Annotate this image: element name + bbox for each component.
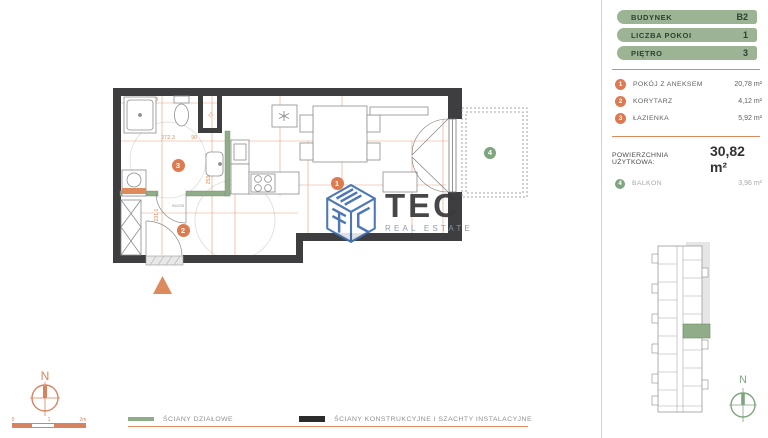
room-name: POKÓJ Z ANEKSEM <box>633 81 734 88</box>
wardrobe <box>121 200 141 255</box>
entrance-threshold <box>146 256 183 265</box>
room-marker-bathroom: 3 <box>172 159 185 172</box>
logo-subtitle: REAL ESTATE <box>385 224 473 233</box>
balcony-area: 3,96 m² <box>738 180 762 187</box>
room-area: 4,12 m² <box>738 98 762 105</box>
scale-tick: 2m <box>80 417 87 423</box>
room-name: KORYTARZ <box>633 98 738 105</box>
sidebar-divider <box>612 69 760 70</box>
compass-n-label: N <box>41 369 50 383</box>
washer-accent <box>122 188 146 194</box>
scale-bar: 0 1 2m <box>12 417 87 428</box>
dim-label: 231.1 <box>154 209 160 222</box>
info-bar-floor: PIĘTRO 3 <box>617 46 757 60</box>
room-marker-balcony: 4 <box>484 147 496 159</box>
legend-label-structural: ŚCIANY KONSTRUKCYJNE I SZACHTY INSTALACY… <box>334 416 532 423</box>
room-number-badge: 2 <box>615 96 626 107</box>
total-area-row: POWIERZCHNIA UŻYTKOWA: 30,82 m² <box>612 143 762 175</box>
building-key-plan <box>650 240 718 422</box>
dim-label: 272.3 <box>161 135 175 141</box>
dim-label: 90 <box>191 135 197 141</box>
vertical-separator <box>601 0 602 438</box>
entrance-arrow <box>153 276 172 294</box>
scale-tick: 1 <box>48 417 51 423</box>
legend-swatch-partition <box>128 417 154 421</box>
room-list-item: 2 KORYTARZ 4,12 m² <box>612 93 762 110</box>
legend-underline <box>128 426 528 427</box>
info-bar-rooms: LICZBA POKOI 1 <box>617 28 757 42</box>
rooms-label: LICZBA POKOI <box>631 31 692 40</box>
info-bars: BUDYNEK B2 LICZBA POKOI 1 PIĘTRO 3 <box>612 0 768 60</box>
room-number-badge: 3 <box>615 113 626 124</box>
key-plan-compass: N <box>724 370 762 428</box>
room-area: 5,92 m² <box>738 115 762 122</box>
rooms-value: 1 <box>743 30 748 40</box>
keyplan-compass-n-label: N <box>739 374 747 386</box>
scale-tick: 0 <box>12 417 15 423</box>
balcony-number-badge: 4 <box>615 179 625 189</box>
building-label: BUDYNEK <box>631 13 672 22</box>
sidebar-divider <box>612 136 760 137</box>
floor-label: PIĘTRO <box>631 49 663 58</box>
room-number-badge: 1 <box>615 79 626 90</box>
total-area-value: 30,82 m² <box>710 143 762 175</box>
legend-label-partition: ŚCIANY DZIAŁOWE <box>163 416 233 423</box>
dim-label: 72 <box>207 111 215 119</box>
balcony-name: BALKON <box>632 180 738 187</box>
room-name: ŁAZIENKA <box>633 115 738 122</box>
room-marker-corridor: 2 <box>177 224 190 237</box>
room-area: 20,78 m² <box>734 81 762 88</box>
info-bar-building: BUDYNEK B2 <box>617 10 757 24</box>
sidebar: BUDYNEK B2 LICZBA POKOI 1 PIĘTRO 3 1 POK… <box>612 0 768 438</box>
page: 261.3 272.3 90 377.5 231.1 253.5 155.5 7… <box>0 0 768 438</box>
floor-value: 3 <box>743 48 748 58</box>
north-compass: N <box>30 369 60 416</box>
balcony-door <box>412 119 456 192</box>
legend: ŚCIANY DZIAŁOWE ŚCIANY KONSTRUKCYJNE I S… <box>128 414 532 424</box>
room-list-item: 1 POKÓJ Z ANEKSEM 20,78 m² <box>612 76 762 93</box>
total-area-label: POWIERZCHNIA UŻYTKOWA: <box>612 152 706 166</box>
door-size-label: 90/205 <box>172 203 185 208</box>
room-list-item: 3 ŁAZIENKA 5,92 m² <box>612 110 762 127</box>
livingroom-furniture <box>300 106 428 192</box>
logo-title: TEC <box>385 191 473 221</box>
logo: TEC REAL ESTATE <box>323 183 473 245</box>
legend-swatch-structural <box>299 416 325 422</box>
highlighted-unit <box>683 324 710 338</box>
floor-plan: 261.3 272.3 90 377.5 231.1 253.5 155.5 7… <box>0 0 601 438</box>
logo-cube-icon <box>323 183 379 245</box>
balcony-list-item: 4 BALKON 3,96 m² <box>612 175 762 192</box>
building-value: B2 <box>736 12 748 22</box>
